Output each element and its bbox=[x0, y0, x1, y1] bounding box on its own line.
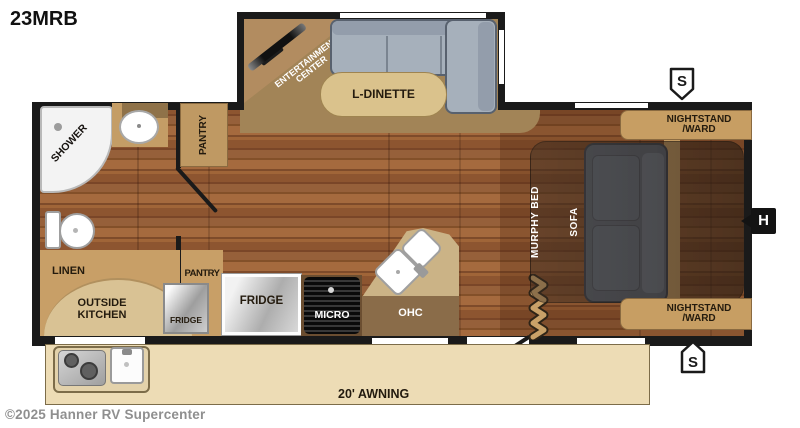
shower-drain-icon bbox=[54, 123, 62, 131]
sofa-label: SOFA bbox=[567, 192, 583, 252]
linen-label: LINEN bbox=[52, 266, 85, 278]
pantry-upper-label: PANTRY bbox=[196, 103, 212, 167]
outdoor-faucet-icon bbox=[122, 349, 132, 355]
burner-icon bbox=[64, 353, 79, 368]
murphy-bed-overlay bbox=[530, 141, 744, 303]
dinette-chaise-back bbox=[478, 22, 494, 111]
floorplan-page: 23MRB ENTERTAINMENT CENTER L-DINETTE SHO… bbox=[0, 0, 800, 428]
window-top bbox=[575, 103, 648, 108]
nightstand-bottom-label: NIGHTSTAND /WARD bbox=[650, 301, 748, 327]
outside-kitchen-opening bbox=[55, 337, 145, 344]
toilet-drain-icon bbox=[73, 228, 78, 233]
awning-label: 20' AWNING bbox=[338, 388, 409, 401]
outdoor-sink-drain-icon bbox=[124, 362, 129, 367]
pantry-lower-label: PANTRY bbox=[180, 267, 224, 281]
slideout-window bbox=[340, 13, 486, 18]
slideout-window-side bbox=[499, 30, 504, 84]
ohc-label: OHC bbox=[362, 306, 459, 322]
wall-left bbox=[32, 102, 40, 346]
nightstand-top-label: NIGHTSTAND /WARD bbox=[650, 112, 748, 138]
fridge-main-label: FRIDGE bbox=[222, 293, 301, 309]
dinette-table: L-DINETTE bbox=[320, 72, 447, 117]
dinette-label: L-DINETTE bbox=[352, 88, 415, 101]
dinette-seam bbox=[386, 36, 388, 74]
speaker-marker-bottom: S bbox=[679, 338, 707, 376]
page-title: 23MRB bbox=[10, 8, 78, 31]
speaker-letter: S bbox=[688, 354, 698, 371]
speaker-marker-top: S bbox=[668, 66, 696, 104]
burner-icon bbox=[80, 362, 98, 380]
watermark: ©2025 Hanner RV Supercenter bbox=[5, 407, 205, 422]
outside-kitchen-label: OUTSIDE KITCHEN bbox=[52, 296, 152, 324]
microwave-knob-icon bbox=[328, 287, 334, 293]
bath-sink-drain-icon bbox=[137, 124, 141, 128]
micro-label: MICRO bbox=[304, 308, 360, 324]
dinette-seam bbox=[440, 36, 442, 74]
speaker-letter: S bbox=[677, 73, 687, 90]
slideout-wall-left bbox=[237, 12, 244, 110]
hookup-letter: H bbox=[758, 213, 769, 229]
microwave bbox=[304, 277, 360, 334]
hookup-marker: H bbox=[751, 208, 776, 234]
murphy-bed-label: MURPHY BED bbox=[528, 182, 544, 262]
fridge-outside-label: FRIDGE bbox=[163, 313, 209, 327]
sink-drain-icon bbox=[396, 270, 400, 274]
